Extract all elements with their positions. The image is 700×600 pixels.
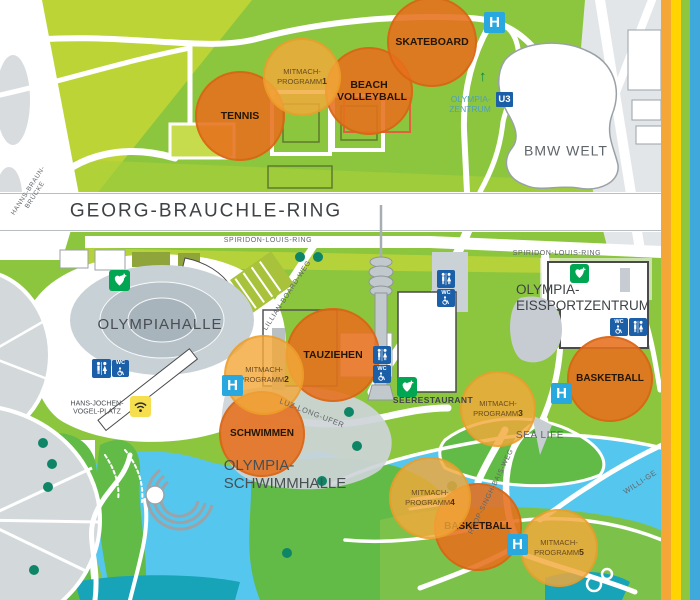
program-number: 3 [518, 408, 523, 418]
restroom-icon-olympiahalle [92, 359, 111, 378]
activity-label: BEACH VOLLEYBALL [337, 79, 401, 103]
activity-label: TAUZIEHEN [303, 349, 362, 361]
program-number: 4 [450, 497, 455, 507]
road-label-spiridon-louis-ring-left: SPIRIDON-LOUIS-RING [224, 237, 312, 245]
activity-label: SCHWIMMEN [230, 428, 294, 440]
wc-accessible-icon-seerestaurant: WC [437, 289, 455, 307]
place-label-sea-life: SEA LIFE [516, 430, 564, 442]
road-label-georg-brauchle-ring: GEORG-BRAUCHLE-RING [70, 201, 342, 224]
program-label: MITMACH- [411, 488, 449, 497]
wifi-icon-hans-jochen-vogel-platz [130, 396, 151, 417]
u3-subway-icon[interactable]: U3 [496, 92, 513, 107]
place-label-olympiahalle: OLYMPIAHALLE [97, 316, 222, 334]
stripe-yellow [671, 0, 681, 600]
tram-stop-icon-south[interactable]: H [507, 534, 528, 555]
restroom-icon-tower [373, 346, 391, 364]
program-5[interactable]: MITMACH-PROGRAMM5 [520, 509, 598, 587]
program-label: PROGRAMM [239, 375, 284, 384]
subway-destination-label: OLYMPIA- ZENTRUM [449, 94, 491, 114]
tram-stop-icon-north[interactable]: H [484, 12, 505, 33]
tram-stop-icon-olympiahalle[interactable]: H [222, 375, 243, 396]
wc-accessible-icon-tower: WC [373, 365, 391, 383]
program-1[interactable]: MITMACH-PROGRAMM1 [263, 38, 341, 116]
place-label-hans-jochen-vogel-platz: HANS-JOCHEN- VOGEL-PLATZ [71, 401, 124, 418]
program-label: MITMACH- [479, 399, 517, 408]
program-number: 5 [579, 547, 584, 557]
activity-skateboard[interactable]: SKATEBOARD [387, 0, 477, 87]
stripe-green [681, 0, 690, 600]
program-label: PROGRAMM [473, 409, 518, 418]
subway-direction-arrow-icon: ↑ [479, 68, 487, 85]
place-label-bmw-welt: BMW WELT [524, 143, 608, 160]
olympiapark-map: TENNIS BEACH VOLLEYBALL SKATEBOARD TAUZI… [0, 0, 700, 600]
first-aid-icon-eissportzentrum [570, 264, 589, 283]
wc-accessible-icon-eissportzentrum: WC [610, 318, 628, 336]
stripe-orange [661, 0, 671, 600]
map-edge-color-stripes [661, 0, 700, 600]
first-aid-icon-seerestaurant [397, 377, 417, 397]
activity-label: SKATEBOARD [395, 36, 468, 48]
program-number: 2 [284, 374, 289, 384]
place-label-eissportzentrum: OLYMPIA- EISSPORTZENTRUM [516, 282, 650, 314]
place-label-schwimmhalle: OLYMPIA- SCHWIMMHALLE [224, 457, 347, 493]
wc-accessible-icon-olympiahalle: WC [112, 360, 129, 377]
program-number: 1 [322, 76, 327, 86]
program-label: PROGRAMM [534, 548, 579, 557]
stripe-blue [690, 0, 700, 600]
activity-label: TENNIS [221, 110, 260, 122]
activity-basketball-east[interactable]: BASKETBALL [567, 336, 653, 422]
first-aid-icon-olympiahalle [109, 270, 130, 291]
program-label: MITMACH- [283, 67, 321, 76]
program-label: MITMACH- [540, 538, 578, 547]
program-label: PROGRAMM [405, 498, 450, 507]
road-label-spiridon-louis-ring-right: SPIRIDON-LOUIS-RING [513, 250, 601, 258]
program-label: PROGRAMM [277, 77, 322, 86]
tram-stop-icon-eissportzentrum[interactable]: H [551, 383, 572, 404]
program-label: MITMACH- [245, 365, 283, 374]
activity-label: BASKETBALL [576, 373, 644, 385]
restroom-icon-eissportzentrum [629, 318, 647, 336]
restroom-icon-seerestaurant [437, 270, 455, 288]
program-4[interactable]: MITMACH-PROGRAMM4 [389, 457, 471, 539]
